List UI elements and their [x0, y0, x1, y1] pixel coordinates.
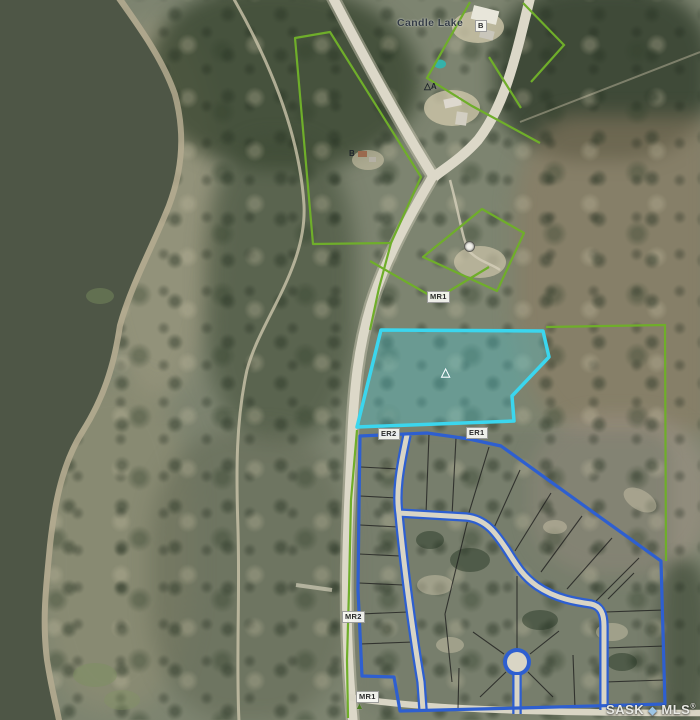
highlighted-parcel [357, 330, 549, 427]
marker-b-top: B [475, 20, 487, 32]
label-er1: ER1 [466, 427, 488, 439]
clearing-patches [352, 11, 506, 278]
diamond-icon: ◆ [648, 705, 657, 717]
label-mr2: MR2 [342, 611, 365, 623]
sask-mls-watermark: SASK ◆ MLS® [606, 702, 696, 717]
subdivision-street-casing [398, 435, 604, 714]
registered-symbol: ® [690, 704, 696, 711]
aerial-photo-map: Candle Lake B △A B MR1 △ ER2 ER1 MR2 MR1… [0, 0, 700, 720]
label-mr1-top: MR1 [427, 291, 450, 303]
triangle-icon: △ [424, 81, 431, 91]
subdivision-street-surface [398, 435, 604, 714]
circle-marker [464, 241, 475, 252]
watermark-brand: SASK [606, 702, 644, 717]
lake-water [0, 0, 178, 720]
cul-de-sac-surface [507, 652, 527, 672]
place-label: Candle Lake [397, 17, 463, 29]
marker-a-top: △A [424, 77, 437, 93]
side-road-stub [296, 585, 332, 590]
shore-trail [231, 0, 304, 720]
label-er2: ER2 [378, 428, 400, 440]
highlighted-parcel-triangle-icon: △ [441, 366, 450, 378]
bottom-triangle-icon: ▲ [355, 702, 364, 711]
watermark-brand2: MLS [661, 702, 690, 717]
marker-a-top-letter: A [431, 82, 437, 91]
marker-b-mid: B [349, 150, 355, 158]
